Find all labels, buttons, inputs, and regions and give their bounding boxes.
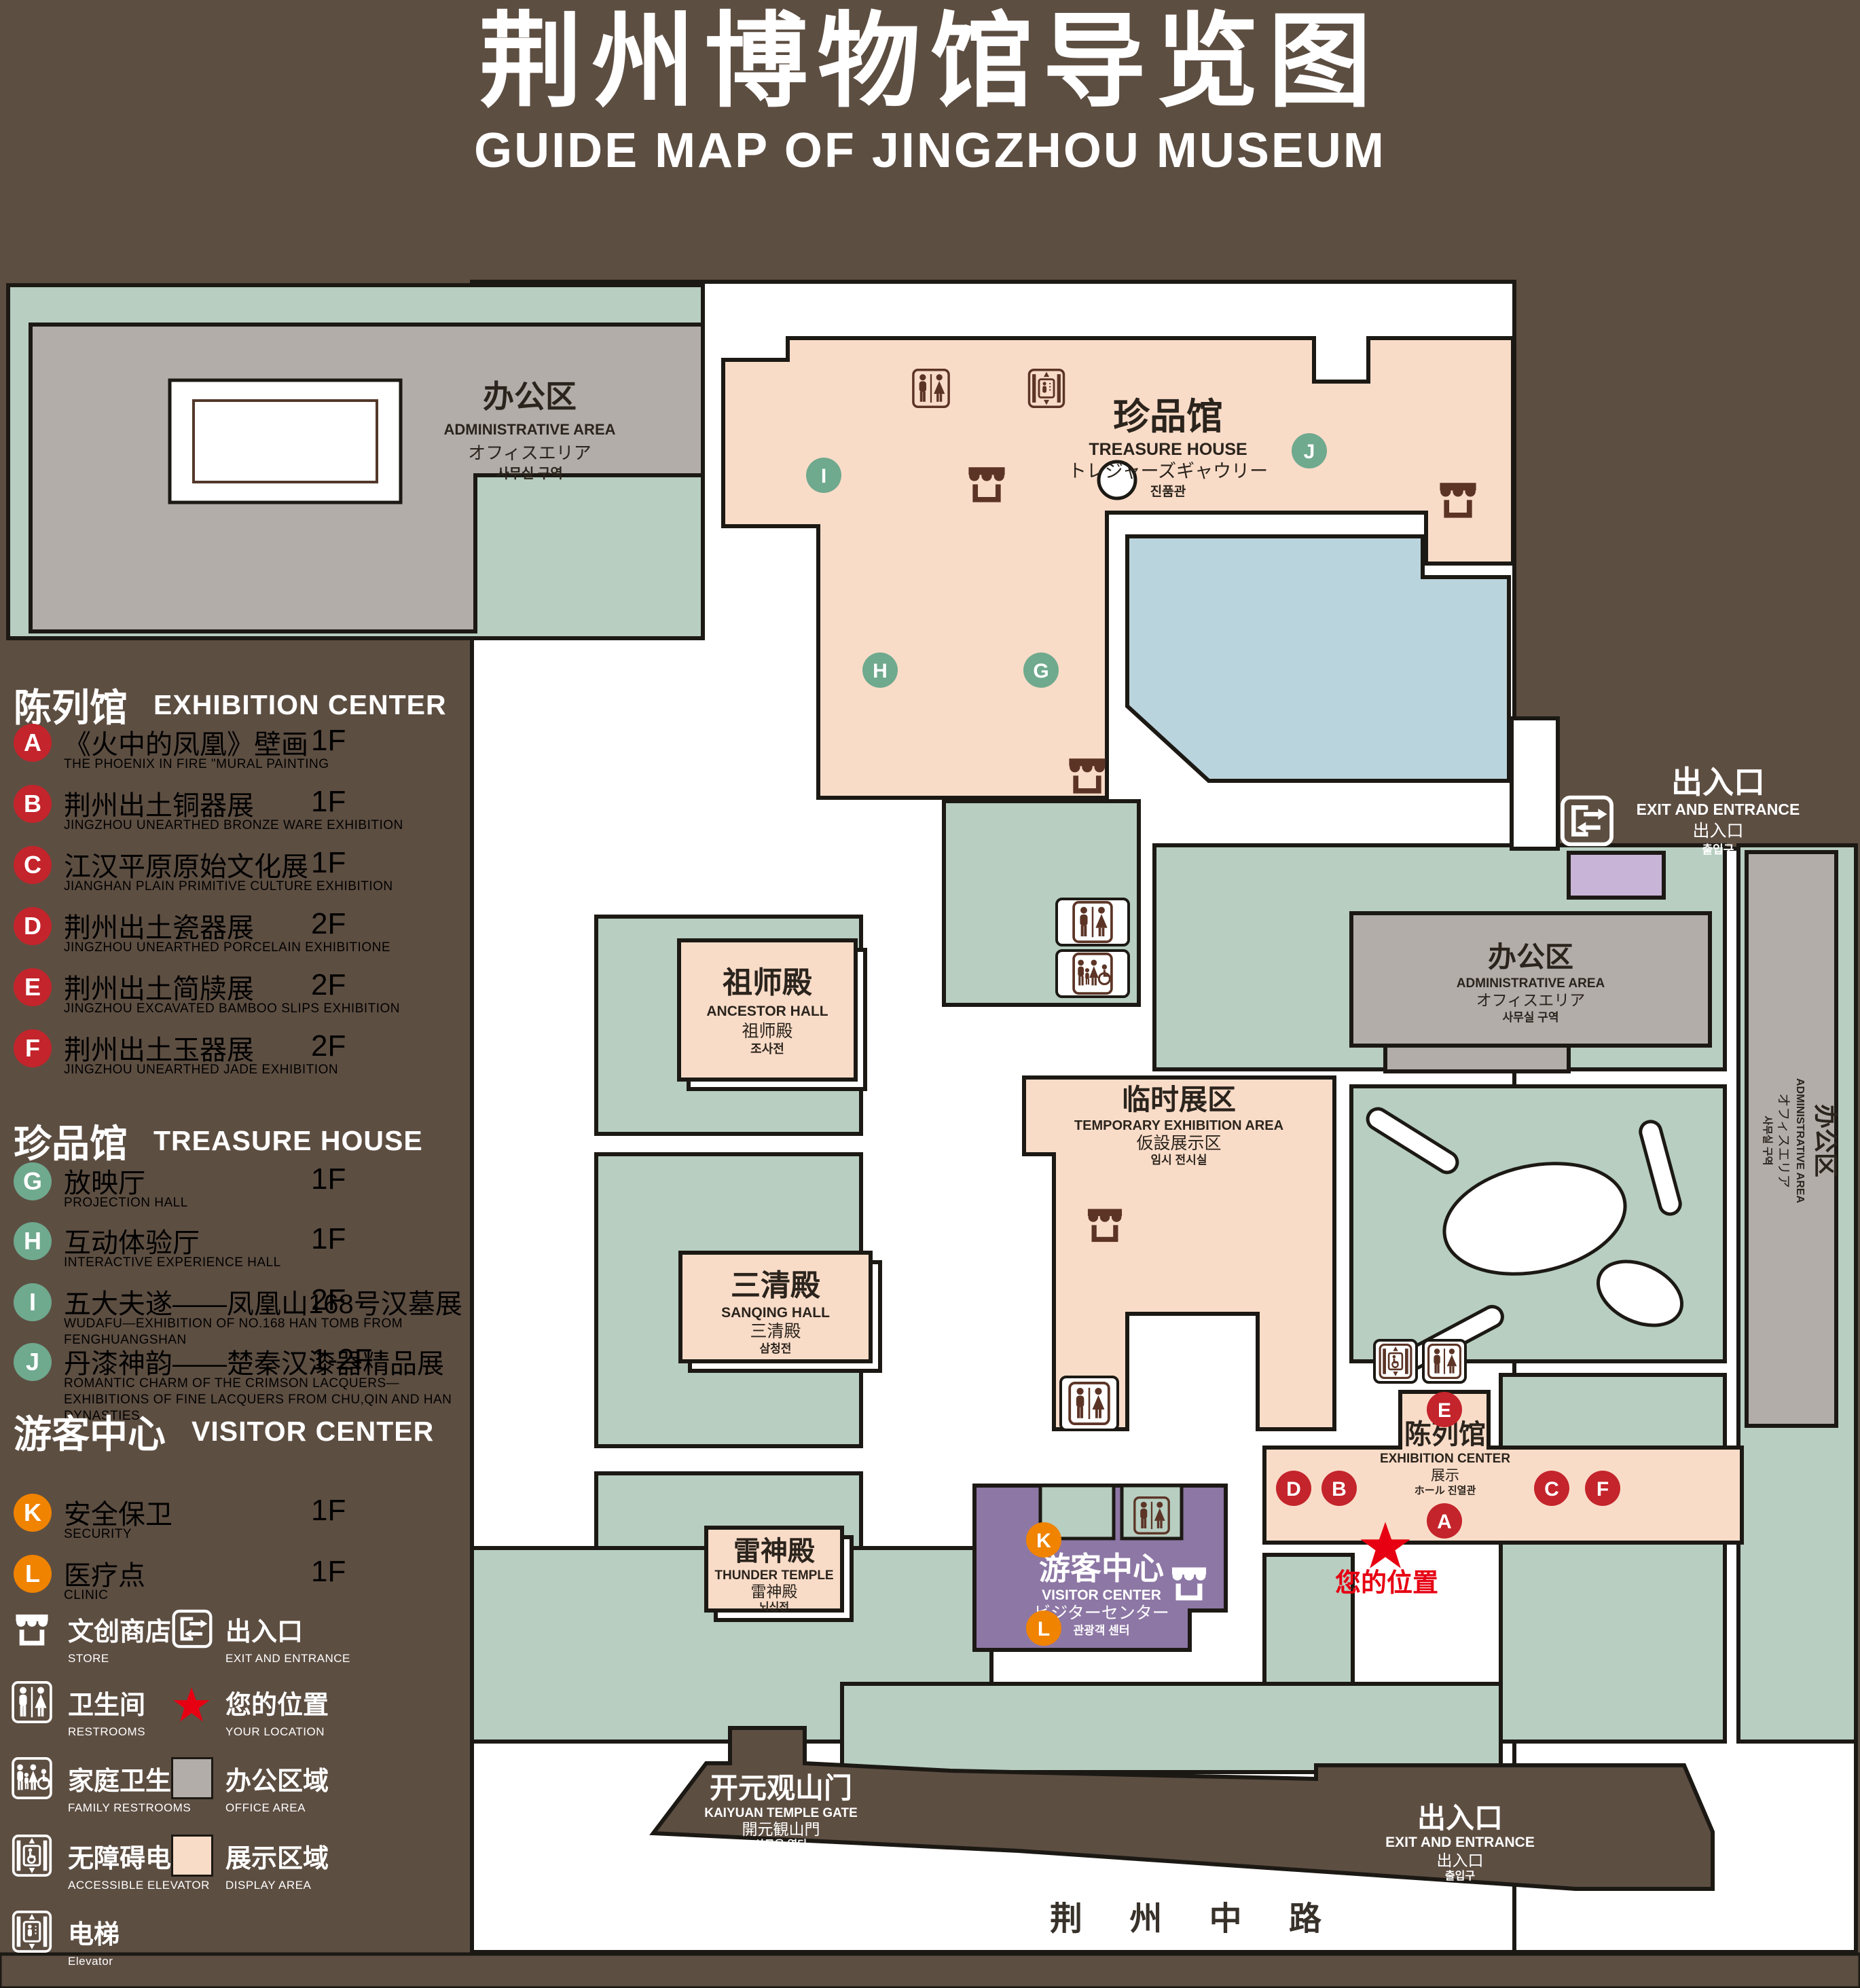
exit-ne-en: EXIT AND ENTRANCE [1637,800,1800,818]
item-en: JIANGHAN PLAIN PRIMITIVE CULTURE EXHIBIT… [64,879,485,895]
legend-item-f: F 荆州出土玉器展 2F JINGZHOU UNEARTHED JADE EXH… [14,1029,475,1089]
admin-east-ja: オフィスエリア [1776,1093,1791,1188]
item-en: PROJECTION HALL [64,1195,485,1211]
admin-nw-ko: 사무실 구역 [496,466,563,481]
legend-item-b: B 荆州出土铜器展 1F JINGZHOU UNEARTHED BRONZE W… [14,785,475,845]
marker-i: I [14,1283,52,1321]
marker-h: H [14,1222,52,1260]
ancestor-ko: 조사전 [750,1042,784,1056]
temporary-en: TEMPORARY EXHIBITION AREA [1074,1118,1283,1133]
admin-nw-courtyard-inner [194,401,377,482]
ancestor-ja: 祖师殿 [742,1022,792,1041]
marker-e: E [14,968,52,1006]
store-icon [11,1608,53,1650]
section-title-en: TREASURE HOUSE [153,1125,423,1157]
family-restroom-icon [11,1757,53,1799]
svg-text:C: C [1544,1478,1559,1501]
item-floor: 1F [311,1555,346,1589]
ancestor-zh: 祖师殿 [723,966,812,999]
restroom-icon [11,1681,53,1723]
sanqing-ko: 삼청전 [760,1342,792,1355]
ne-exit-path [1512,718,1558,849]
treasure-ja: トレジャーズギャウリー [1068,461,1268,481]
sanqing-ja: 三清殿 [750,1322,801,1341]
exit-icon [171,1608,213,1650]
symbol-exit: 出入口 EXIT AND ENTRANCE [225,1610,350,1665]
legend-item-g: G 放映厅 1F PROJECTION HALL [14,1162,475,1222]
thunder-ko: 뇌신전 [759,1601,789,1613]
road-label: 荆 州 中 路 [1050,1901,1341,1937]
treasure-ko: 진품관 [1150,484,1186,499]
item-en: JINGZHOU UNEARTHED PORCELAIN EXHIBITIONE [64,940,485,956]
accessible-elevator-icon [11,1835,53,1877]
marker-b: B [14,785,52,823]
item-en: JINGZHOU EXCAVATED BAMBOO SLIPS EXHIBITI… [64,1001,485,1017]
map-marker-g: G [1023,652,1059,688]
marker-g: G [14,1162,52,1200]
section-title-zh: 游客中心 [14,1404,166,1459]
thunder-ja: 雷神殿 [751,1583,798,1600]
page-subtitle: GUIDE MAP OF JINGZHOU MUSEUM [0,123,1860,179]
treasure-zh: 珍品馆 [1113,397,1223,437]
svg-text:D: D [1286,1478,1301,1501]
elevator-icon [11,1911,53,1953]
sanqing-zh: 三清殿 [731,1269,820,1302]
exit-s-ko: 출입구 [1445,1870,1475,1882]
legend-item-k: K 安全保卫 1F SECURITY [14,1494,475,1553]
display-area-swatch [171,1835,213,1877]
admin-right-ja: オフィスエリア [1476,991,1586,1009]
admin-east-ko: 사무실 구역 [1762,1116,1773,1165]
symbol-display-area: 展示区域 DISPLAY AREA [225,1837,329,1892]
admin-right-ko: 사무실 구역 [1503,1011,1559,1024]
thunder-zh: 雷神殿 [733,1536,815,1566]
marker-d: D [14,907,52,945]
your-location-star-icon [172,1687,215,1729]
symbol-your-location: 您的位置 YOUR LOCATION [225,1684,329,1739]
item-floor: 1F [311,846,346,880]
svg-text:F: F [1597,1478,1609,1501]
exit-ne-ko: 출입구 [1702,843,1734,856]
legend-item-l: L 医疗点 1F CLINIC [14,1555,475,1615]
item-floor: 2F [311,1283,346,1317]
exhibition-ja: 展示 [1431,1468,1459,1484]
gate-ja: 開元観山門 [742,1820,820,1838]
map-marker-k: K [1026,1522,1061,1558]
map-marker-e: E [1427,1392,1462,1427]
gate-ko: 산문을 열다 [754,1839,807,1851]
item-floor: 1F [311,1494,346,1528]
admin-nw-zh: 办公区 [483,379,577,414]
legend-item-i: I 五大夫遂——凤凰山168号汉墓展 2F WUDAFU—EXHIBITION … [14,1283,475,1343]
gate-en: KAIYUAN TEMPLE GATE [704,1806,858,1820]
svg-text:A: A [1437,1511,1452,1533]
marker-c: C [14,846,52,884]
admin-east-en: ADMINISTRATIVE AREA [1794,1078,1806,1203]
road-strip [0,1954,1860,1988]
map-marker-l: L [1026,1610,1061,1646]
map-marker-a: A [1427,1503,1462,1539]
label-exit-ne: 出入口 EXIT AND ENTRANCE 出入口 출입구 [1637,765,1800,856]
temporary-ja: 仮設展示区 [1136,1134,1221,1153]
item-floor: 2F [311,1029,346,1063]
visitor-en: VISITOR CENTER [1042,1587,1161,1603]
map-marker-i: I [806,458,841,493]
temporary-ko: 임시 전시실 [1151,1153,1207,1166]
exit-ne-zh: 出入口 [1671,765,1765,800]
svg-text:K: K [1036,1530,1051,1552]
svg-text:J: J [1304,441,1315,463]
legend-item-d: D 荆州出土瓷器展 2F JINGZHOU UNEARTHED PORCELAI… [14,907,475,967]
item-floor: 1F [311,785,346,819]
map-marker-h: H [862,652,898,688]
svg-text:B: B [1332,1478,1347,1501]
map-marker-b: B [1321,1471,1357,1506]
map-marker-c: C [1534,1471,1569,1506]
symbol-store: 文创商店 STORE [68,1610,171,1665]
marker-a: A [14,724,52,762]
admin-nw-ja: オフィスエリア [468,443,591,463]
treasure-en: TREASURE HOUSE [1089,440,1247,459]
map-marker-j: J [1292,433,1327,468]
exit-s-en: EXIT AND ENTRANCE [1385,1835,1535,1850]
item-en: CLINIC [64,1587,485,1604]
item-en: JINGZHOU UNEARTHED JADE EXHIBITION [64,1062,485,1078]
legend-item-a: A 《火中的凤凰》壁画 1F THE PHOENIX IN FIRE "MURA… [14,724,475,784]
item-floor: 1F [311,1162,346,1196]
symbol-elevator: 电梯 Elevator [68,1913,120,1968]
item-floor: 1F [311,724,346,758]
marker-j: J [14,1343,52,1381]
legend-item-h: H 互动体验厅 1F INTERACTIVE EXPERIENCE HALL [14,1222,475,1282]
svg-text:E: E [1438,1399,1451,1422]
exit-s-zh: 出入口 [1417,1802,1503,1834]
item-floor: 1-2F [311,1343,372,1377]
visitor-ko: 관광객 센터 [1074,1624,1130,1637]
svg-text:L: L [1038,1618,1050,1640]
accessible-elevator-icon [1380,1345,1411,1378]
elevator-icon [1029,370,1063,407]
svg-text:G: G [1033,660,1048,682]
exhibition-en: EXHIBITION CENTER [1380,1452,1510,1466]
marker-k: K [14,1494,52,1532]
temporary-zh: 临时展区 [1122,1084,1236,1116]
symbol-restroom: 卫生间 RESTROOMS [68,1684,145,1739]
page-title: 荆州博物馆导览图 [0,5,1860,119]
title-block: 荆州博物馆导览图 GUIDE MAP OF JINGZHOU MUSEUM [0,0,1860,179]
symbol-office-area: 办公区域 OFFICE AREA [225,1760,329,1815]
map-marker-f: F [1585,1471,1620,1506]
your-location-label: 您的位置 [1335,1569,1438,1598]
marker-f: F [14,1029,52,1067]
ancestor-en: ANCESTOR HALL [706,1004,828,1019]
svg-text:I: I [821,465,826,487]
item-floor: 2F [311,968,346,1002]
svg-text:H: H [873,660,888,682]
item-en: JINGZHOU UNEARTHED BRONZE WARE EXHIBITIO… [64,817,485,834]
map-marker-d: D [1276,1471,1311,1506]
exit-s-ja: 出入口 [1437,1852,1484,1869]
section-title-zh: 珍品馆 [14,1113,128,1168]
visitor-zh: 游客中心 [1039,1551,1164,1586]
thunder-en: THUNDER TEMPLE [714,1568,833,1583]
exhibition-ko: ホール 진열관 [1415,1485,1476,1496]
guide-map-page: 办公区 ADMINISTRATIVE AREA オフィスエリア 사무실 구역 珍… [0,0,1860,1988]
item-floor: 1F [311,1222,346,1256]
exit-icon [1563,798,1611,845]
item-en: SECURITY [64,1526,485,1543]
exit-ne-ja: 出入口 [1692,822,1743,841]
item-en: INTERACTIVE EXPERIENCE HALL [64,1255,485,1271]
section-title-en: VISITOR CENTER [192,1416,434,1448]
item-en: THE PHOENIX IN FIRE "MURAL PAINTING [64,756,485,773]
gate-zh: 开元观山门 [710,1772,852,1804]
admin-right-en: ADMINISTRATIVE AREA [1457,976,1605,991]
sanqing-en: SANQING HALL [721,1305,830,1321]
admin-right-zh: 办公区 [1488,941,1573,973]
item-floor: 2F [311,907,346,941]
marker-l: L [14,1555,52,1593]
legend-item-e: E 荆州出土简牍展 2F JINGZHOU EXCAVATED BAMBOO S… [14,968,475,1028]
office-area-swatch [171,1757,213,1799]
legend-item-c: C 江汉平原原始文化展 1F JIANGHAN PLAIN PRIMITIVE … [14,846,475,906]
legend-section-treasure-house: 珍品馆 TREASURE HOUSE [14,1113,423,1168]
section-title-en: EXHIBITION CENTER [153,689,447,721]
admin-nw-en: ADMINISTRATIVE AREA [444,421,616,438]
admin-east-zh: 办公区 [1812,1104,1840,1177]
legend-section-visitor-center: 游客中心 VISITOR CENTER [14,1404,434,1459]
